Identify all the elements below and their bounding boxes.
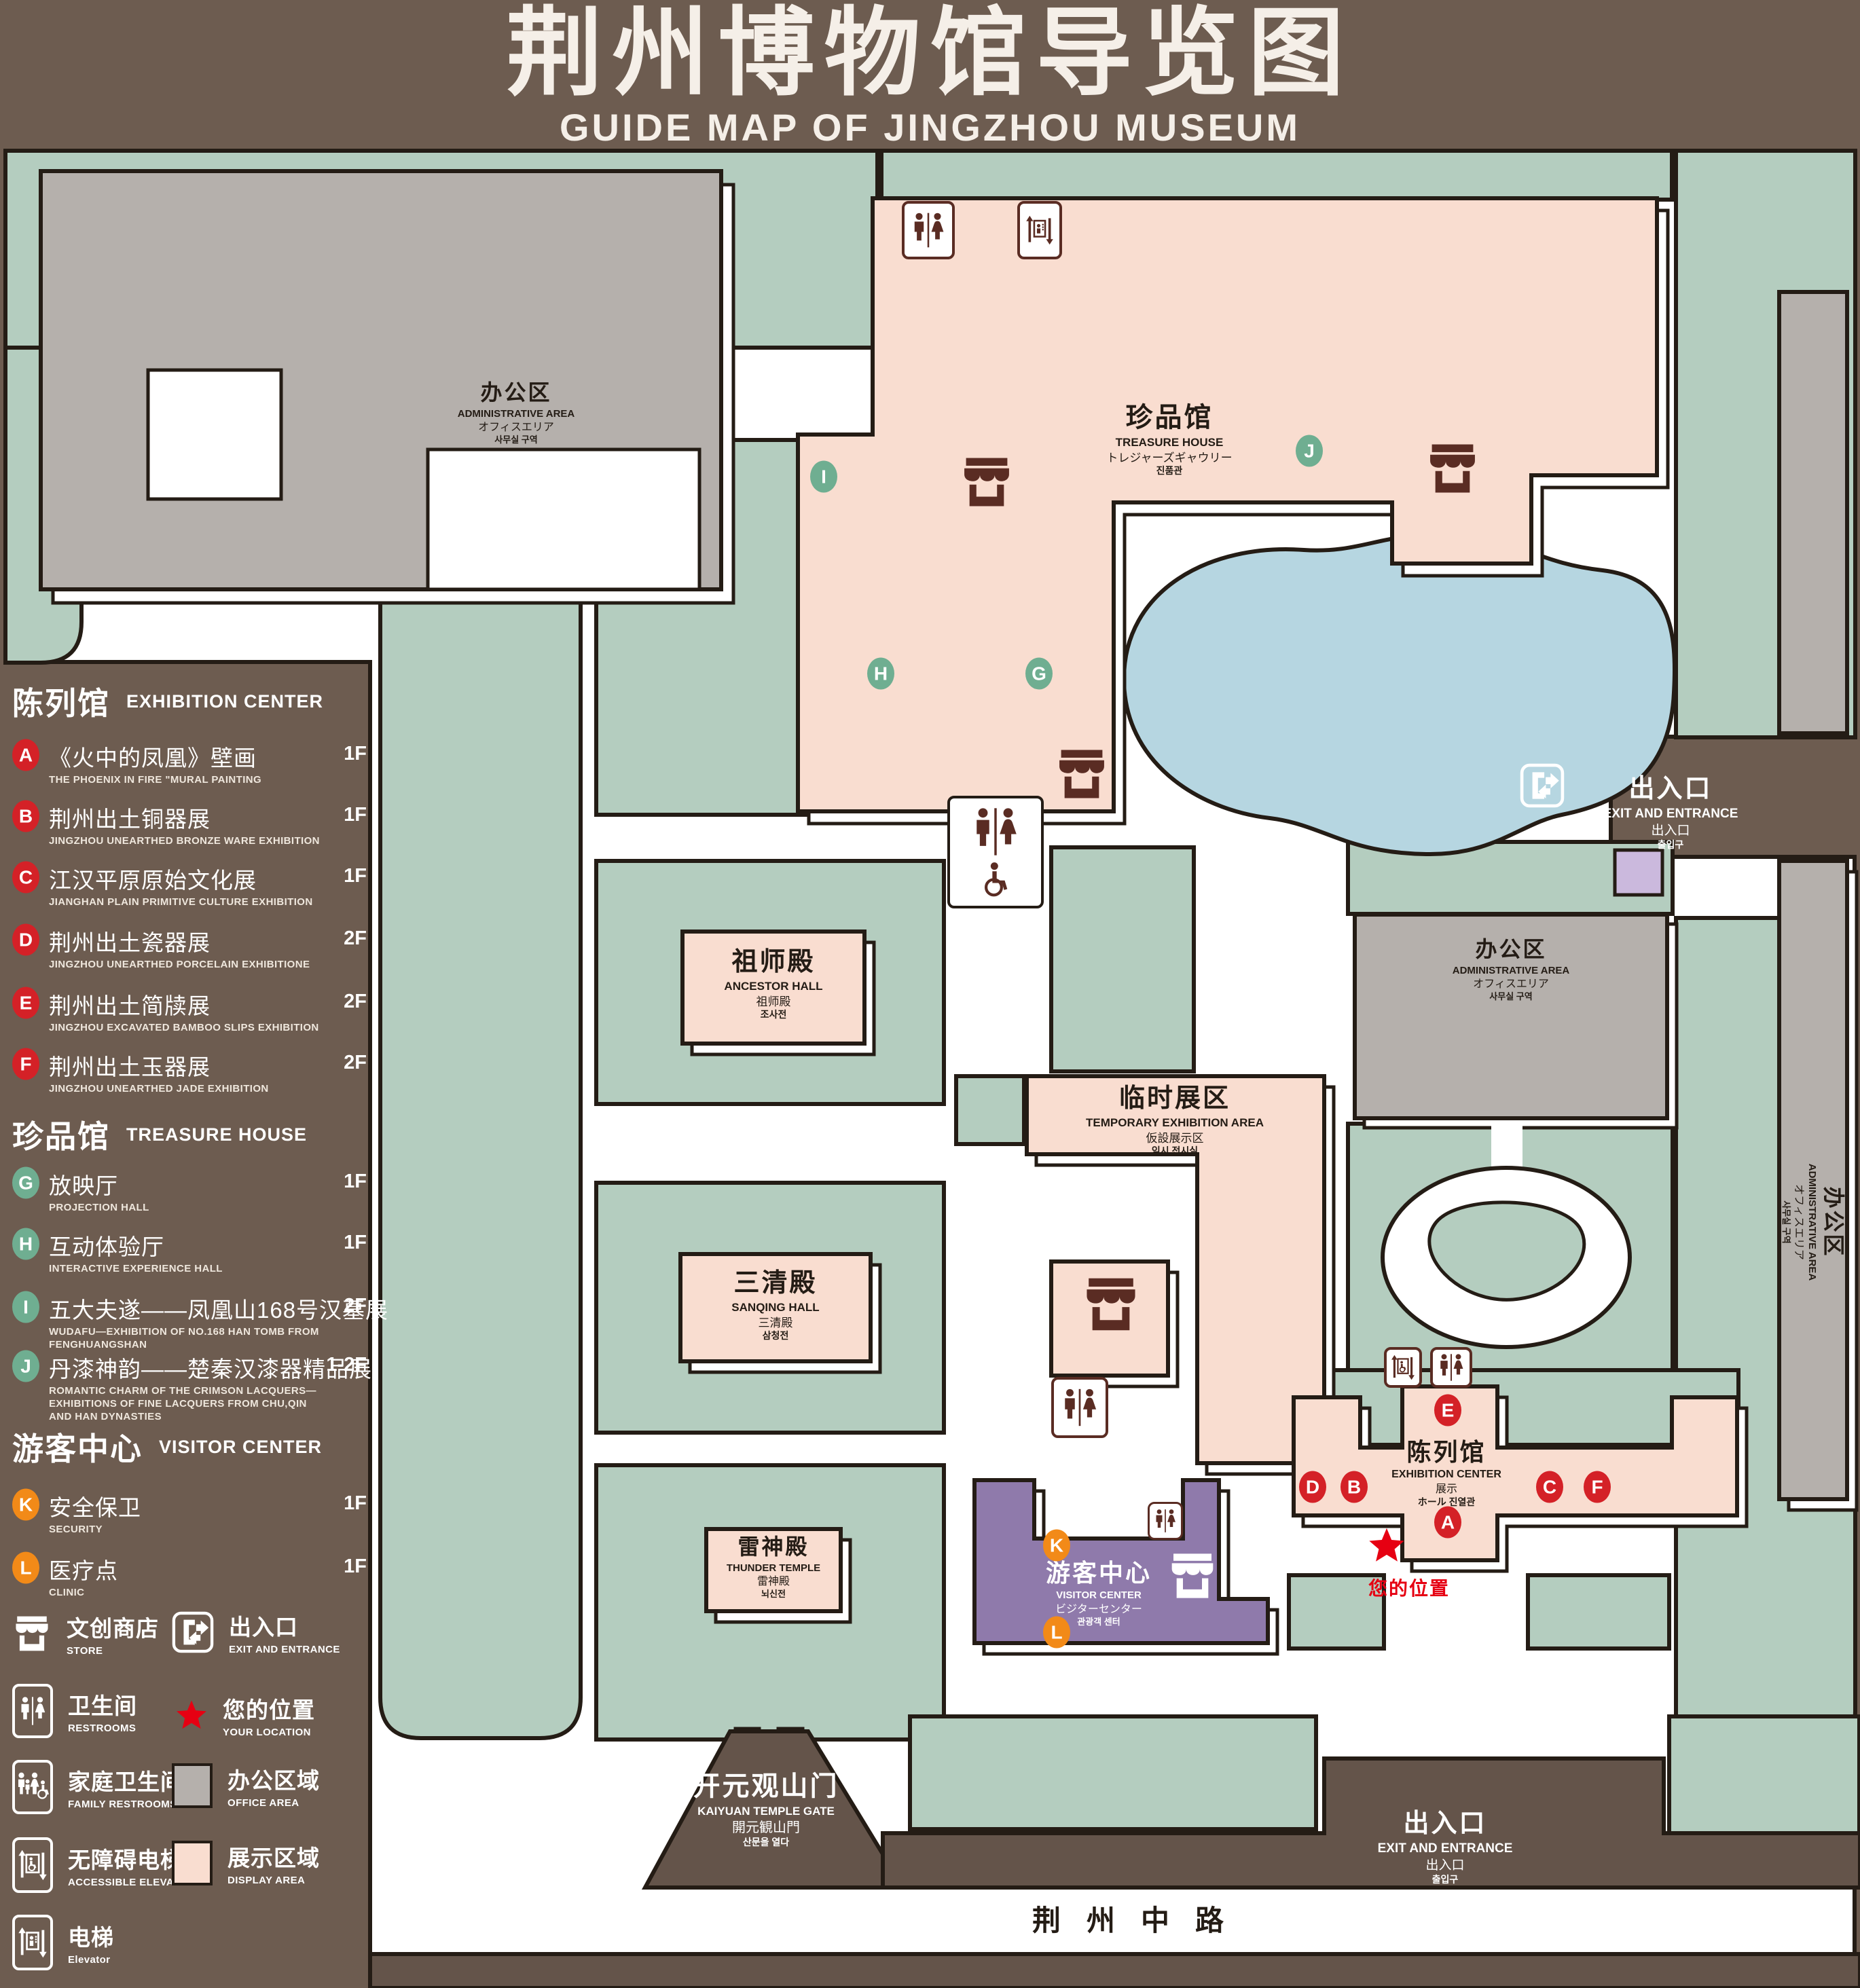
legend-item-b: B 荆州出土铜器展JINGZHOU UNEARTHED BRONZE WARE … bbox=[12, 801, 367, 848]
legend-marker-g: G bbox=[12, 1167, 39, 1199]
store-icon bbox=[959, 456, 1015, 508]
map-marker-k: K bbox=[1043, 1530, 1070, 1562]
map-marker-f: F bbox=[1584, 1471, 1611, 1503]
legend-marker-f: F bbox=[12, 1048, 39, 1080]
store-icon bbox=[1425, 443, 1480, 494]
legend-item-j: J 丹漆神韵——楚秦汉漆器精品展ROMANTIC CHARM OF THE CR… bbox=[12, 1351, 367, 1423]
legend-item-i: I 五大夫遂——凤凰山168号汉墓展WUDAFU—EXHIBITION OF N… bbox=[12, 1292, 367, 1352]
store-icon bbox=[1081, 1276, 1141, 1332]
green-sliver-3 bbox=[1051, 847, 1194, 1071]
green-exh-bottom-right bbox=[1528, 1575, 1669, 1649]
exit-icon bbox=[172, 1608, 214, 1657]
guide-map-poster: 荆州博物馆导览图 GUIDE MAP OF JINGZHOU MUSEUM bbox=[0, 0, 1860, 1988]
store-icon bbox=[12, 1612, 52, 1655]
legend-symbol-elevator: 电梯Elevator bbox=[12, 1915, 114, 1970]
legend-symbol-location: 您的位置YOUR LOCATION bbox=[175, 1692, 315, 1738]
label-exhibition-center: 陈列馆 EXHIBITION CENTER 展示 ホール 진열관 bbox=[1391, 1438, 1501, 1508]
legend-symbol-office-area: 办公区域OFFICE AREA bbox=[172, 1763, 320, 1809]
label-kaiyuan-gate: 开元观山门KAIYUAN TEMPLE GATE 開元観山門산문을 열다 bbox=[693, 1771, 839, 1847]
courtyard-1 bbox=[148, 370, 281, 499]
green-gate-right bbox=[910, 1716, 1316, 1829]
label-exit-right: 出入口EXIT AND ENTRANCE 出入口출입구 bbox=[1603, 774, 1738, 850]
legend-item-e: E 荆州出土简牍展JINGZHOU EXCAVATED BAMBOO SLIPS… bbox=[12, 988, 367, 1035]
legend-item-a: A 《火中的凤凰》壁画THE PHOENIX IN FIRE "MURAL PA… bbox=[12, 740, 367, 787]
road-south-strip bbox=[370, 1954, 1860, 1988]
elevator-icon bbox=[1017, 201, 1062, 259]
map-marker-b: B bbox=[1341, 1471, 1368, 1503]
map-marker-i: I bbox=[810, 461, 837, 493]
legend-marker-k: K bbox=[12, 1489, 39, 1521]
legend-item-f: F 荆州出土玉器展JINGZHOU UNEARTHED JADE EXHIBIT… bbox=[12, 1049, 367, 1096]
green-top-strip bbox=[881, 151, 1672, 200]
courtyard-2 bbox=[428, 449, 699, 589]
restroom-icon bbox=[12, 1684, 53, 1738]
label-office-right: 办公区ADMINISTRATIVE AREA オフィスエリア사무실 구역 bbox=[1781, 1164, 1846, 1281]
label-ancestor-hall: 祖师殿ANCESTOR HALL 祖师殿조사전 bbox=[724, 947, 822, 1020]
exit-icon bbox=[1520, 763, 1565, 808]
legend-marker-d: D bbox=[12, 924, 39, 956]
map-marker-a: A bbox=[1434, 1507, 1461, 1539]
restroom-icon bbox=[902, 201, 955, 259]
accessible-elevator-icon bbox=[12, 1837, 53, 1893]
legend-item-d: D 荆州出土瓷器展JINGZHOU UNEARTHED PORCELAIN EX… bbox=[12, 925, 367, 972]
label-office-mid: 办公区ADMINISTRATIVE AREA オフィスエリア사무실 구역 bbox=[1453, 937, 1570, 1002]
label-road: 荆州中路 bbox=[1032, 1898, 1250, 1939]
office-area-swatch bbox=[172, 1763, 213, 1808]
green-exit-right bbox=[1669, 1716, 1859, 1843]
legend-symbol-restrooms: 卫生间RESTROOMS bbox=[12, 1684, 137, 1738]
legend-marker-i: I bbox=[12, 1291, 39, 1323]
label-temporary-exhibition: 临时展区TEMPORARY EXHIBITION AREA 仮設展示区임시 전시… bbox=[1086, 1084, 1264, 1156]
building-office-right-upper bbox=[1779, 292, 1847, 733]
legend-symbol-display-area: 展示区域DISPLAY AREA bbox=[172, 1840, 320, 1886]
legend-marker-e: E bbox=[12, 987, 39, 1019]
map-marker-j: J bbox=[1296, 435, 1323, 467]
legend-item-c: C 江汉平原原始文化展JIANGHAN PLAIN PRIMITIVE CULT… bbox=[12, 862, 367, 909]
label-treasure-house: 珍品馆TREASURE HOUSE トレジャーズギャウリー진품관 bbox=[1106, 402, 1232, 477]
building-small-1 bbox=[1615, 850, 1662, 895]
map-marker-l: L bbox=[1043, 1617, 1070, 1649]
legend-symbol-store: 文创商店STORE bbox=[12, 1610, 159, 1657]
your-location-label: 您的位置 bbox=[1368, 1574, 1450, 1601]
legend-item-l: L 医疗点CLINIC 1F bbox=[12, 1553, 367, 1600]
legend-item-h: H 互动体验厅INTERACTIVE EXPERIENCE HALL 1F bbox=[12, 1229, 367, 1276]
display-area-swatch bbox=[172, 1841, 213, 1885]
legend-item-k: K 安全保卫SECURITY 1F bbox=[12, 1490, 367, 1536]
legend-marker-c: C bbox=[12, 862, 39, 894]
legend-symbol-family-restrooms: 家庭卫生间FAMILY RESTROOMS bbox=[12, 1760, 183, 1814]
map-marker-c: C bbox=[1536, 1471, 1563, 1503]
green-central-column bbox=[380, 440, 581, 1738]
label-office-top-left: 办公区ADMINISTRATIVE AREA オフィスエリア사무실 구역 bbox=[458, 380, 575, 445]
restroom-icon bbox=[1430, 1347, 1472, 1388]
legend-item-g: G 放映厅PROJECTION HALL 1F bbox=[12, 1168, 367, 1215]
label-exit-bottom: 出入口EXIT AND ENTRANCE 出入口출입구 bbox=[1378, 1809, 1513, 1885]
legend-marker-a: A bbox=[12, 739, 39, 771]
store-icon bbox=[1054, 748, 1110, 800]
family-restroom-icon bbox=[12, 1760, 53, 1814]
legend-marker-b: B bbox=[12, 800, 39, 832]
store-icon bbox=[1167, 1552, 1218, 1600]
legend-symbol-exit: 出入口EXIT AND ENTRANCE bbox=[172, 1608, 340, 1657]
your-location-star-icon bbox=[175, 1699, 208, 1731]
green-sliver-2 bbox=[956, 1076, 1024, 1144]
elevator-icon bbox=[12, 1915, 53, 1970]
map-marker-h: H bbox=[867, 658, 894, 690]
legend-symbol-accessible-elevator: 无障碍电梯ACCESSIBLE ELEVATOR bbox=[12, 1837, 196, 1893]
restroom-icon bbox=[1051, 1377, 1108, 1438]
legend-marker-h: H bbox=[12, 1228, 39, 1260]
restroom-family-icon bbox=[947, 796, 1044, 908]
map-marker-e: E bbox=[1434, 1395, 1461, 1426]
map-marker-d: D bbox=[1299, 1471, 1326, 1503]
legend-section-visitor-center: 游客中心VISITOR CENTER bbox=[12, 1424, 322, 1469]
label-sanqing-hall: 三清殿SANQING HALL 三清殿삼청전 bbox=[731, 1268, 819, 1341]
legend-section-exhibition-center: 陈列馆EXHIBITION CENTER bbox=[12, 679, 323, 724]
legend-section-treasure-house: 珍品馆TREASURE HOUSE bbox=[12, 1112, 307, 1157]
restroom-icon bbox=[1148, 1502, 1183, 1540]
legend-marker-l: L bbox=[12, 1552, 39, 1584]
label-thunder-temple: 雷神殿THUNDER TEMPLE 雷神殿뇌신전 bbox=[727, 1534, 820, 1600]
map-marker-g: G bbox=[1025, 658, 1053, 690]
legend-marker-j: J bbox=[12, 1350, 39, 1382]
accessible-elevator-icon bbox=[1384, 1347, 1422, 1388]
your-location-star-icon bbox=[1368, 1527, 1406, 1564]
